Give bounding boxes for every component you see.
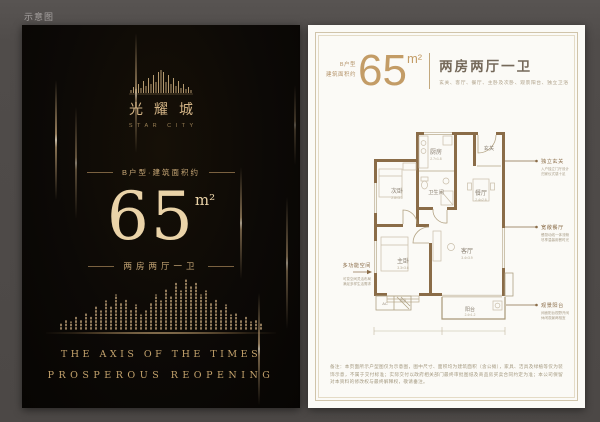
rooms-label: 两房两厅一卫 bbox=[123, 260, 198, 272]
floorplan-page: B户型 建筑面积约 65m² 两房两厅一卫 玄关、客厅、餐厅、主卧及次卧、观景阳… bbox=[308, 25, 585, 408]
callout-dining-desc1: 餐厨动线一体流畅 bbox=[541, 232, 569, 237]
dash-decoration bbox=[88, 266, 114, 267]
room-label-balcony: 阳台 bbox=[465, 306, 475, 313]
header-area-figure: 65m² bbox=[358, 51, 422, 91]
unit-type-line2: 建筑面积约 bbox=[326, 71, 356, 80]
unit-type-line1: B户型 bbox=[326, 61, 356, 70]
room-label-entry: 玄关 bbox=[484, 144, 494, 152]
slogan-line1: THE AXIS OF THE TIMES bbox=[22, 349, 300, 360]
glow-line-decoration bbox=[46, 332, 276, 334]
cover-panel: 光耀城 STAR CITY B户型·建筑面积约 65m² 两房两厅一卫 THE … bbox=[22, 25, 300, 408]
room-dim-balcony: 2.4×1.2 bbox=[465, 313, 476, 317]
floorplan-fixtures bbox=[379, 136, 502, 310]
callout-flex-desc2: 满足多样生活需求 bbox=[343, 281, 371, 286]
brand-logo: 光耀城 STAR CITY bbox=[22, 69, 300, 129]
watermark-label: 示意图 bbox=[24, 10, 54, 23]
header-rooms-detail: 玄关、客厅、餐厅、主卧及次卧、观景阳台、独立卫浴 bbox=[439, 79, 569, 86]
skyline-icon bbox=[126, 69, 196, 95]
callout-balcony-desc1: 阔面阳台视野开阔 bbox=[541, 310, 569, 315]
callout-dining-desc2: 尽享温馨用餐时光 bbox=[541, 237, 569, 242]
header-area-value: 65 bbox=[358, 46, 407, 95]
ac-platform-outline bbox=[376, 273, 513, 310]
header-divider bbox=[429, 53, 430, 89]
dimension-line bbox=[374, 327, 505, 335]
header-rooms-block: 两房两厅一卫 玄关、客厅、餐厅、主卧及次卧、观景阳台、独立卫浴 bbox=[439, 55, 569, 86]
disclaimer-text: 备注：本页面所示户型图仅为示意图，图中尺寸、面积均为建筑面积（含公摊），家具、洁… bbox=[330, 363, 563, 386]
dash-decoration bbox=[87, 172, 113, 173]
dotted-skyline-icon bbox=[36, 277, 286, 332]
unit-intro-label: B户型·建筑面积约 bbox=[122, 167, 200, 178]
room-label-bay-window: 飘窗 bbox=[400, 298, 407, 303]
room-dim-dining: 2.4×2.6 bbox=[475, 198, 487, 202]
room-labels: 厨房 2.7×1.8 卫生间 玄关 餐厅 2.4×2.6 次卧 2.8×3.0 … bbox=[382, 144, 494, 317]
callout-flex-title: 多功能空间 bbox=[343, 261, 371, 269]
callout-dining-title: 宽敞餐厅 bbox=[541, 223, 564, 231]
callout-left: 多功能空间 可变空间灵活布局 满足多样生活需求 bbox=[343, 261, 372, 286]
header-area-unit: m² bbox=[407, 51, 422, 66]
callout-entry-desc1: 入户独立门厅设计 bbox=[541, 166, 569, 171]
area-value: 65 bbox=[107, 178, 195, 255]
room-label-kitchen: 厨房 bbox=[430, 148, 442, 156]
brand-name: 光耀城 bbox=[22, 99, 300, 119]
room-dim-master: 3.3×3.6 bbox=[397, 266, 409, 270]
cover-area-block: B户型·建筑面积约 65m² 两房两厅一卫 bbox=[22, 167, 300, 272]
floorplan-drawing: 厨房 2.7×1.8 卫生间 玄关 餐厅 2.4×2.6 次卧 2.8×3.0 … bbox=[315, 121, 578, 349]
callout-flex-desc1: 可变空间灵活布局 bbox=[343, 276, 371, 281]
room-label-master: 主卧 bbox=[397, 257, 409, 265]
header-rooms-title: 两房两厅一卫 bbox=[439, 55, 569, 75]
area-unit: m² bbox=[195, 191, 215, 209]
room-label-bedroom2: 次卧 bbox=[391, 187, 403, 195]
dash-decoration bbox=[208, 266, 234, 267]
room-dim-living: 3.4×3.9 bbox=[461, 256, 473, 260]
room-dim-bedroom2: 2.8×3.0 bbox=[391, 196, 403, 200]
rooms-row: 两房两厅一卫 bbox=[22, 260, 300, 272]
dash-decoration bbox=[209, 172, 235, 173]
room-label-bath: 卫生间 bbox=[428, 188, 444, 196]
slogan-line2: PROSPEROUS REOPENING bbox=[22, 370, 300, 381]
area-figure: 65m² bbox=[22, 184, 300, 250]
room-dim-kitchen: 2.7×1.8 bbox=[430, 157, 442, 161]
room-label-ac: AC bbox=[382, 301, 388, 306]
unit-type-block: B户型 建筑面积约 bbox=[326, 61, 356, 80]
floorplan-header: B户型 建筑面积约 65m² 两房两厅一卫 玄关、客厅、餐厅、主卧及次卧、观景阳… bbox=[326, 51, 569, 91]
callout-entry-title: 独立玄关 bbox=[541, 157, 564, 165]
callout-entry-desc2: 归家仪式感十足 bbox=[541, 171, 566, 176]
brand-subtitle: STAR CITY bbox=[22, 123, 300, 129]
room-label-living: 客厅 bbox=[461, 247, 473, 255]
callout-balcony-title: 观景阳台 bbox=[541, 301, 564, 309]
callout-balcony-desc2: 休闲观景两相宜 bbox=[541, 315, 566, 320]
unit-intro-row: B户型·建筑面积约 bbox=[22, 167, 300, 178]
callouts-right: 独立玄关 入户独立门厅设计 归家仪式感十足 宽敞餐厅 餐厨动线一体流畅 尽享温馨… bbox=[505, 157, 569, 320]
room-label-dining: 餐厅 bbox=[475, 189, 487, 197]
